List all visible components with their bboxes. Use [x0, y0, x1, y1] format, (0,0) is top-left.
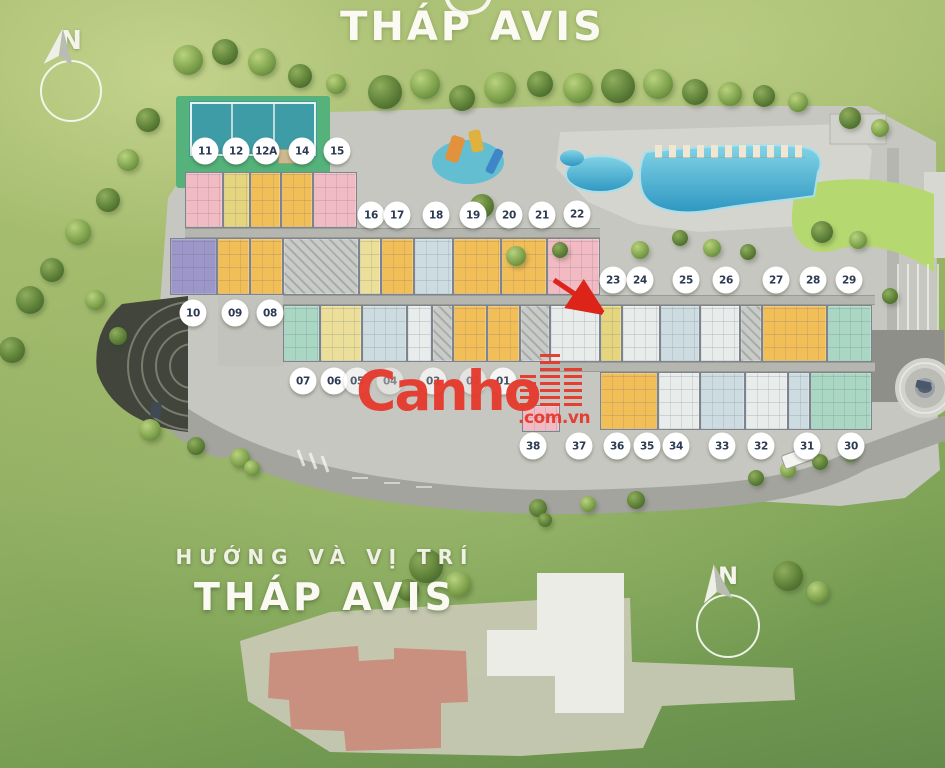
site-plan-image: 111212A141516171819202122232425262728291… [0, 0, 945, 768]
buildings-icon [520, 348, 586, 406]
north-arrow-icon [696, 562, 736, 606]
compass-top: N [40, 26, 102, 122]
building-bar [540, 354, 560, 406]
building-bar [564, 364, 582, 406]
footer-subtitle: HƯỚNG VÀ VỊ TRÍ [150, 545, 500, 569]
watermark-suffix: .com.vn [518, 408, 590, 428]
compass-ring [40, 60, 102, 122]
footer-title: THÁP AVIS [150, 575, 500, 619]
watermark-brand: Canho [356, 364, 540, 419]
north-arrow-icon [40, 26, 80, 70]
compass-ring [696, 594, 760, 658]
building-bar [520, 372, 536, 406]
page-title: THÁP AVIS [0, 4, 945, 50]
compass-bottom: N [696, 562, 760, 658]
watermark: Canho .com.vn [356, 346, 596, 438]
